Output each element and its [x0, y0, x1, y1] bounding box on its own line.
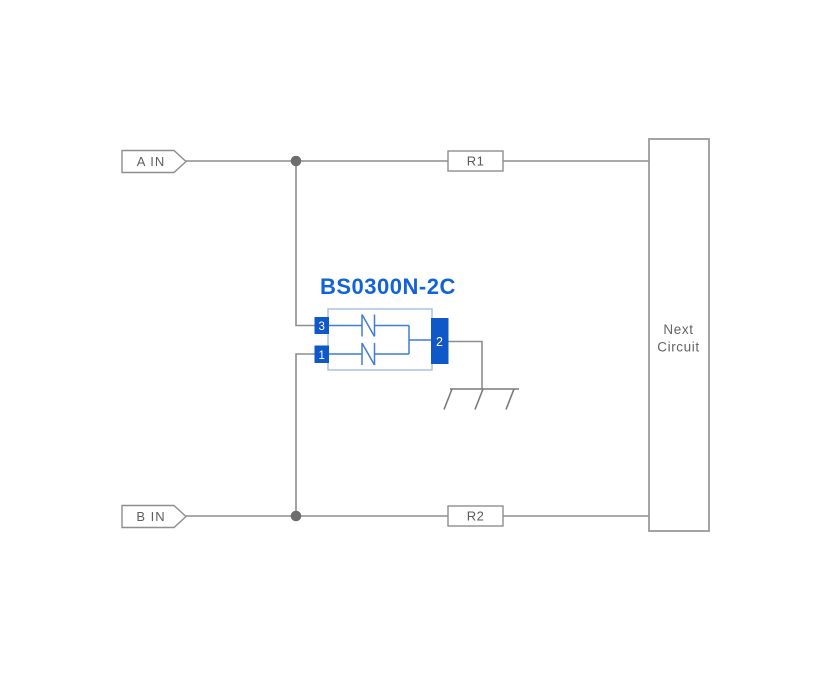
wire-b-to-pin1 [296, 354, 315, 516]
b-in-terminal: B IN [122, 506, 186, 528]
pin-1-label: 1 [318, 350, 324, 362]
pin-2-label: 2 [436, 335, 443, 349]
next-circuit-block: Next Circuit [649, 139, 709, 531]
pin-3-label: 3 [318, 321, 324, 333]
junction-dot-a [291, 156, 302, 167]
b-in-label: B IN [136, 509, 165, 524]
pin-3: 3 [315, 317, 330, 334]
pin-1: 1 [315, 346, 330, 364]
circuit-diagram: A IN B IN R1 R2 Next Circuit BS0300N-2C [0, 0, 832, 675]
resistor-r2: R2 [448, 506, 503, 526]
next-circuit-label-line2: Circuit [657, 340, 699, 355]
wire-a-to-pin3 [296, 161, 315, 326]
next-circuit-label-line1: Next [663, 322, 693, 337]
ground-symbol [444, 389, 519, 410]
component-name-label: BS0300N-2C [320, 274, 456, 299]
resistor-r1-label: R1 [467, 154, 485, 169]
resistor-r2-label: R2 [467, 509, 485, 524]
wire-pin2-to-ground [449, 342, 483, 390]
ground-tick-2 [475, 389, 483, 410]
a-in-label: A IN [137, 154, 166, 169]
a-in-terminal: A IN [122, 151, 186, 173]
tvs-component: BS0300N-2C 3 1 [315, 274, 456, 370]
circuit-diagram-canvas: A IN B IN R1 R2 Next Circuit BS0300N-2C [0, 0, 832, 675]
ground-tick-3 [506, 389, 514, 410]
ground-tick-1 [444, 389, 452, 410]
pin-2: 2 [431, 318, 449, 364]
resistor-r1: R1 [448, 151, 503, 171]
junction-dot-b [291, 511, 302, 522]
